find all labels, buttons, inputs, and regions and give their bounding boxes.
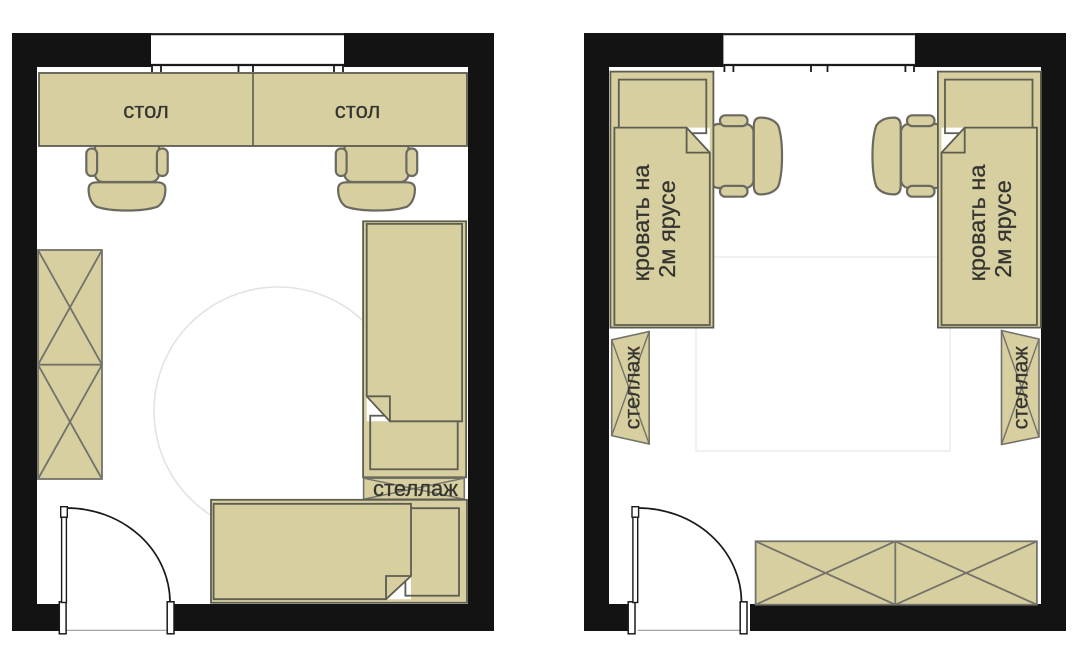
svg-text:2м ярусе: 2м ярусе <box>654 180 680 278</box>
svg-text:стеллаж: стеллаж <box>1009 346 1033 430</box>
svg-text:кровать на: кровать на <box>628 164 654 282</box>
svg-text:стеллаж: стеллаж <box>373 476 458 501</box>
svg-text:стеллаж: стеллаж <box>621 346 645 430</box>
svg-text:2м ярусе: 2м ярусе <box>990 180 1016 278</box>
svg-text:стол: стол <box>335 98 380 123</box>
svg-text:кровать на: кровать на <box>964 164 990 282</box>
svg-text:стол: стол <box>123 98 168 123</box>
